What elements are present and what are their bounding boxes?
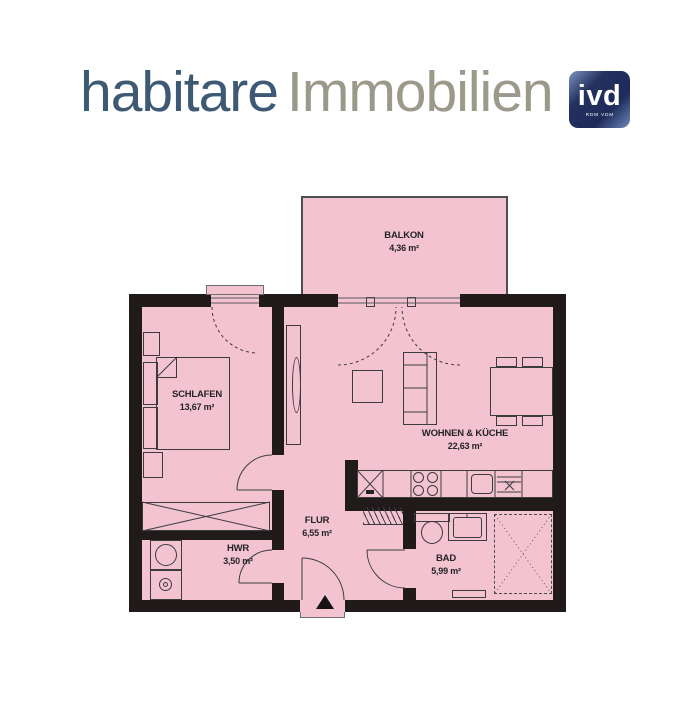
ivd-badge-text: ivd [578, 81, 621, 111]
label-wohnen-kueche: WOHNEN & KÜCHE 22,63 m² [395, 428, 535, 452]
wall-bedroom-living [272, 307, 284, 455]
label-balkon: BALKON 4,36 m² [344, 230, 464, 254]
chair-icon [496, 416, 517, 426]
stove-burner-icon [427, 472, 438, 483]
label-schlafen: SCHLAFEN 13,67 m² [137, 389, 257, 413]
company-logo: habitare Immobilien [80, 60, 553, 124]
washbasin-basin-icon [453, 517, 482, 538]
logo-suffix-text: Immobilien [287, 60, 553, 124]
chair-icon [522, 357, 543, 367]
stove-burner-icon [427, 485, 438, 496]
tv-icon [292, 357, 301, 413]
room-name: HWR [188, 543, 288, 555]
label-bad: BAD 5,99 m² [396, 553, 496, 577]
nightstand-icon [143, 332, 160, 356]
balcony-door-jamb-left [366, 297, 375, 307]
fridge-handle [366, 490, 374, 494]
shower-icon [494, 514, 552, 594]
washing-machine-drum-icon [155, 544, 177, 566]
label-flur: FLUR 6,55 m² [267, 515, 367, 539]
dresser-icon [143, 452, 163, 478]
room-name: BALKON [344, 230, 464, 242]
bedroom-window [211, 294, 259, 307]
dryer-drum-center-icon [163, 582, 168, 587]
stove-burner-icon [413, 472, 424, 483]
room-name: SCHLAFEN [137, 389, 257, 401]
bedroom-window-sill [206, 285, 264, 295]
room-area: 22,63 m² [395, 440, 535, 452]
floorplan-page: habitare Immobilien ivd RDM VDM [0, 0, 700, 709]
wardrobe-icon [142, 502, 270, 531]
room-area: 5,99 m² [396, 565, 496, 577]
bath-radiator-icon [452, 590, 486, 598]
ivd-badge: ivd RDM VDM [569, 71, 630, 128]
dining-table-icon [490, 367, 553, 416]
balcony-door-opening [338, 294, 460, 307]
entrance-step [300, 612, 345, 618]
room-area: 6,55 m² [267, 527, 367, 539]
wall-bedroom-hwr [142, 530, 272, 540]
ivd-badge-subtext: RDM VDM [585, 113, 614, 118]
wall-flur-left-b [272, 583, 284, 600]
entrance-opening [300, 600, 345, 612]
wall-flur-bad-b [403, 588, 416, 600]
sofa-icon [403, 352, 437, 425]
balcony-door-jamb-right [407, 297, 416, 307]
label-hwr: HWR 3,50 m² [188, 543, 288, 567]
coffee-table-icon [352, 370, 383, 403]
logo-brand-text: habitare [80, 60, 278, 124]
chair-icon [496, 357, 517, 367]
room-name: FLUR [267, 515, 367, 527]
room-area: 13,67 m² [137, 401, 257, 413]
bed-pillow-fold-icon [156, 357, 177, 378]
room-name: BAD [396, 553, 496, 565]
kitchen-counter [357, 470, 553, 498]
toilet-bowl-icon [421, 521, 443, 544]
room-area: 3,50 m² [188, 555, 288, 567]
stove-burner-icon [413, 485, 424, 496]
chair-icon [522, 416, 543, 426]
room-area: 4,36 m² [344, 242, 464, 254]
room-name: WOHNEN & KÜCHE [395, 428, 535, 440]
sink-icon [471, 474, 493, 494]
radiator-icon [363, 507, 403, 525]
